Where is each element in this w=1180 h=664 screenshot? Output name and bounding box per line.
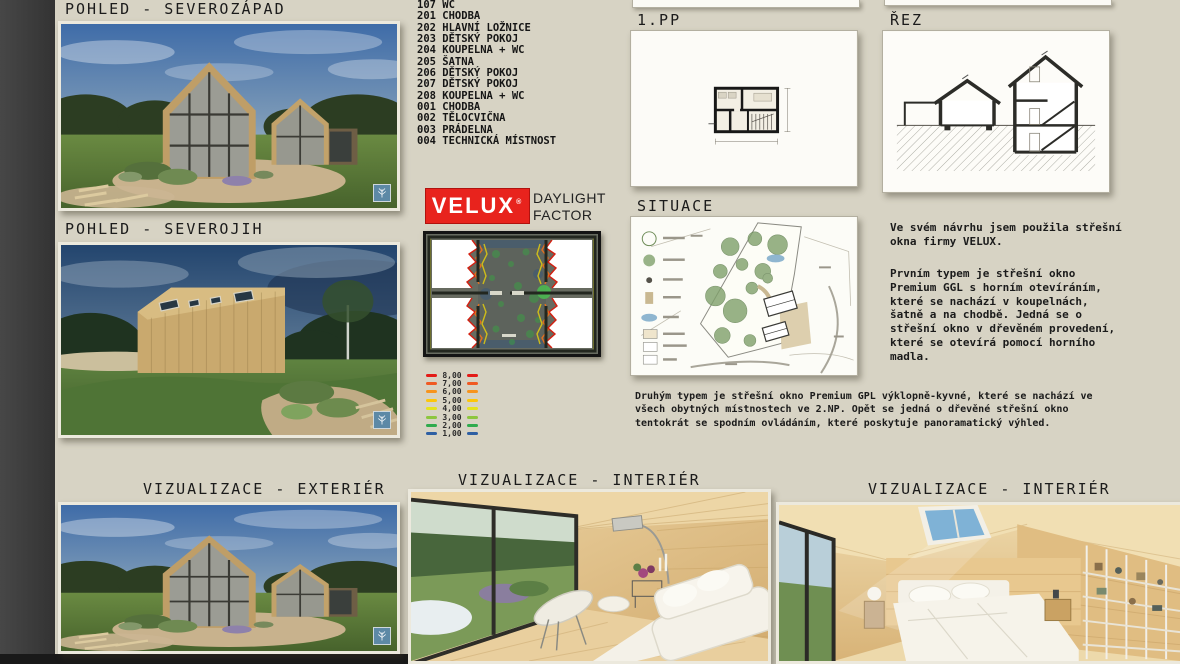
site-plan-drawing [631,217,857,375]
floor-plan-drawing [631,31,857,186]
bedroom-scene-illustration [779,505,1180,661]
heading-pohled-severozapad: POHLED - SEVEROZÁPAD [65,0,286,18]
heading-rez: ŘEZ [890,11,923,29]
legend-value: 1,00 [441,429,463,438]
heading-viz-interier-right: VIZUALIZACE - INTERIÉR [868,480,1111,498]
heading-situace: SITUACE [637,197,714,215]
heading-pohled-severojih: POHLED - SEVEROJIH [65,220,264,238]
text-window-type-2: Druhým typem je střešní okno Premium GPL… [635,390,1115,430]
room-list-item: 201 CHODBA [417,11,556,22]
room-number-list: 107 WC201 CHODBA202 HLAVNÍ LOŽNICE203 DĚ… [417,0,556,147]
daylight-legend: 8,00 7,00 6,00 5,00 [426,371,478,438]
legend-color-dash-right [467,407,478,410]
text-velux-intro: Ve svém návrhu jsem použila střešní okna… [890,221,1130,249]
legend-color-dash-left [426,432,437,435]
velux-logo: VELUX® [425,188,530,224]
panel-section-rez [882,30,1110,193]
heading-plan-1pp: 1.PP [637,11,681,29]
room-list-item: 004 TECHNICKÁ MÍSTNOST [417,136,556,147]
lumion-watermark-icon [373,184,391,202]
heading-viz-exterier: VIZUALIZACE - EXTERIÉR [143,480,386,498]
presentation-board: POHLED - SEVEROZÁPAD POHLED - SEVEROJIH [0,0,1180,664]
legend-color-dash-right [467,432,478,435]
legend-color-dash-left [426,374,437,377]
registered-mark: ® [516,199,523,206]
panel-site-plan [630,216,858,376]
daylight-legend-row: 1,00 [426,430,478,438]
section-drawing [883,31,1109,192]
legend-color-dash-right [467,399,478,402]
exterior-back-scene-illustration [61,245,397,435]
render-pohled-severozapad [58,21,400,211]
lumion-watermark-icon [373,411,391,429]
legend-color-dash-left [426,399,437,402]
exterior-scene-illustration [61,24,397,208]
legend-color-dash-left [426,407,437,410]
cropped-frame-top-right [884,0,1112,6]
render-viz-interier-living [408,489,771,664]
lumion-watermark-icon [373,627,391,645]
legend-color-dash-right [467,424,478,427]
legend-color-dash-left [426,382,437,385]
panel-floor-plan-1pp [630,30,858,187]
daylight-heatmap-illustration [426,234,598,354]
legend-color-dash-right [467,416,478,419]
heading-viz-interier-mid: VIZUALIZACE - INTERIÉR [458,471,701,489]
legend-color-dash-right [467,382,478,385]
bottom-dark-edge [0,654,408,664]
daylight-factor-map [423,231,601,357]
render-viz-interier-bedroom [776,502,1180,664]
render-pohled-severojih [58,242,400,438]
daylight-factor-caption: DAYLIGHT FACTOR [533,190,606,224]
legend-color-dash-right [467,374,478,377]
text-window-type-1: Prvním typem je střešní okno Premium GGL… [890,267,1130,364]
legend-color-dash-left [426,424,437,427]
exterior-scene-illustration [61,505,397,651]
cropped-frame-top-left [632,0,860,8]
legend-color-dash-right [467,390,478,393]
living-room-scene-illustration [411,492,768,661]
legend-color-dash-left [426,390,437,393]
velux-logo-text: VELUX [432,193,515,219]
legend-color-dash-left [426,416,437,419]
left-dark-edge [0,0,55,664]
render-viz-exterier [58,502,400,654]
